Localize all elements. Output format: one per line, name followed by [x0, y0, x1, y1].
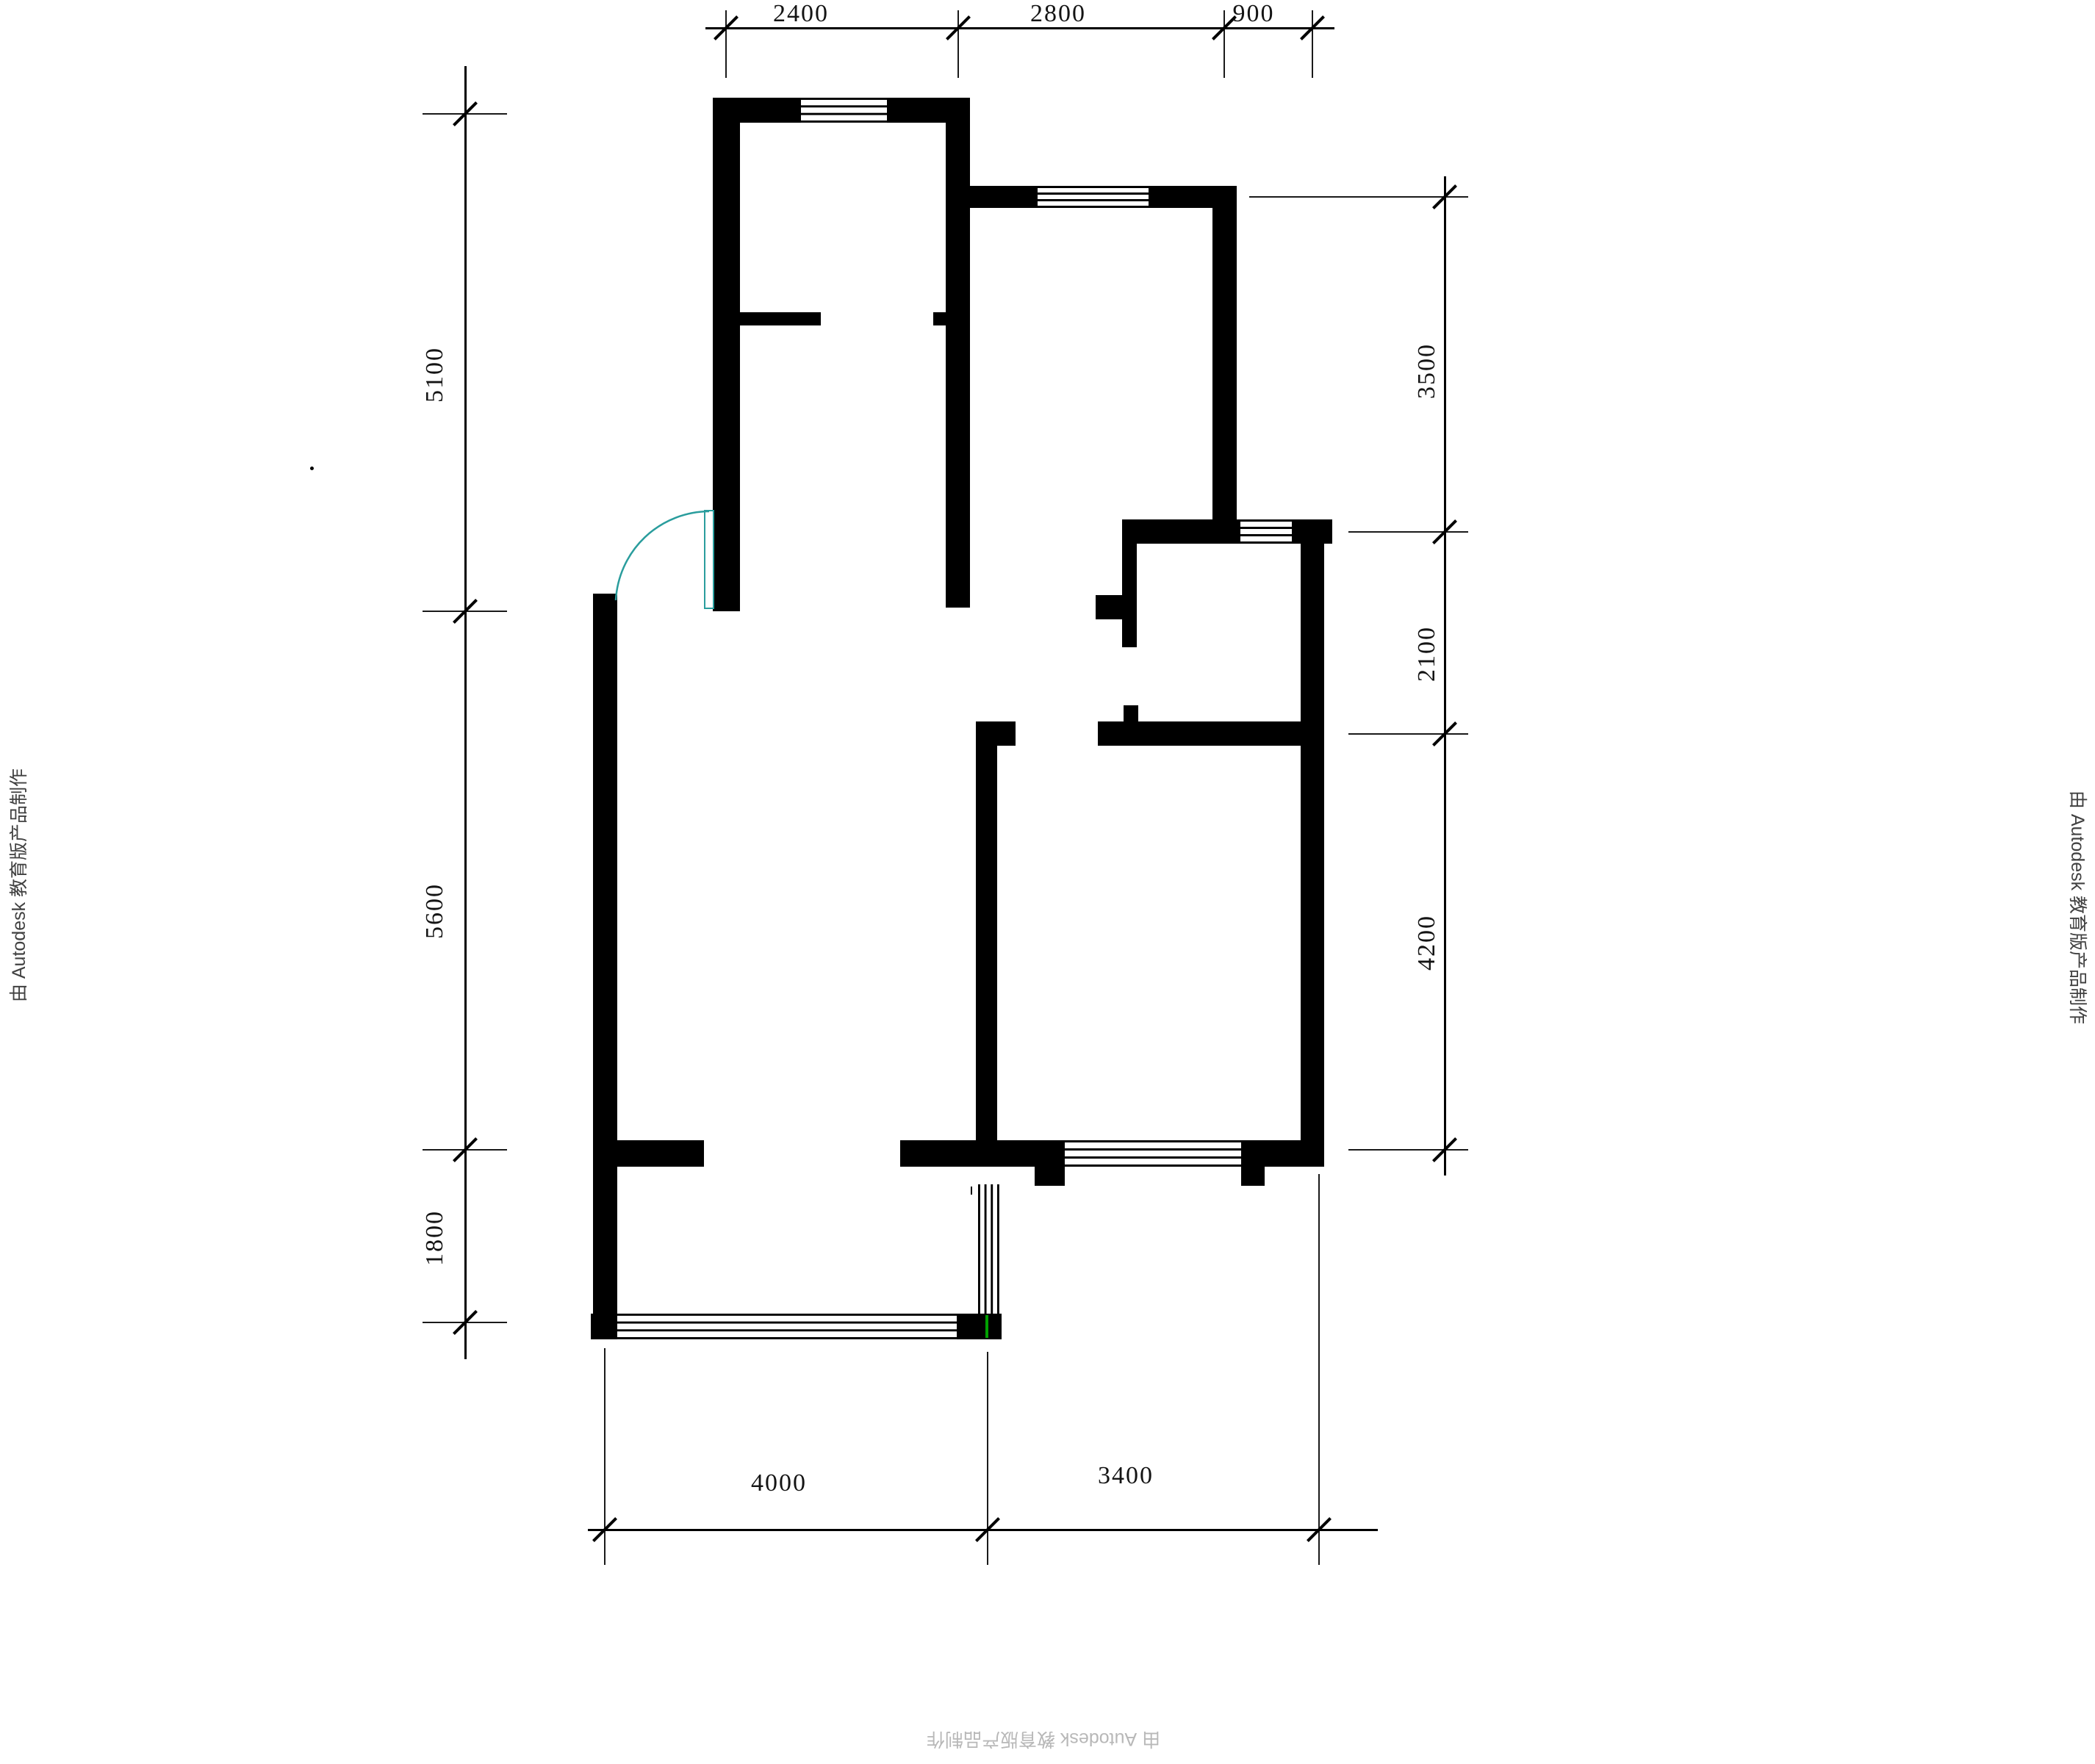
dim-label-top-2800: 2800 — [1030, 0, 1086, 28]
extension-line — [987, 1352, 988, 1565]
extension-line — [604, 1348, 605, 1565]
balcony-green-mark — [985, 1315, 988, 1338]
dimension-line-bottom — [588, 1529, 1378, 1531]
watermark-right: 由 Autodesk 教育版产品制作 — [2066, 782, 2088, 1032]
wall-room2-right — [1212, 186, 1237, 519]
wall-bedroom2-bottom-right — [1241, 1140, 1324, 1167]
wall-bath-left-stub — [1124, 705, 1138, 721]
dim-label-right-4200: 4200 — [1413, 915, 1441, 971]
wall-bedroom1-right — [946, 98, 970, 608]
wall-balcony-corner-right — [957, 1314, 1002, 1339]
entry-door-swing-arc — [610, 507, 720, 613]
window-balcony-south — [617, 1314, 957, 1339]
dim-label-left-5600: 5600 — [421, 883, 449, 939]
extension-line — [1249, 196, 1468, 198]
wall-east-outer — [1301, 519, 1324, 1167]
dim-label-left-5100: 5100 — [421, 347, 449, 403]
dim-label-right-3500: 3500 — [1413, 343, 1441, 399]
wall-bedroom1-top-left — [713, 98, 801, 123]
wall-window-jamb-right — [1241, 1165, 1265, 1186]
wall-bedroom1-partition-left — [737, 312, 821, 325]
wall-bedroom2-bottom-left — [900, 1140, 1065, 1167]
window-bedroom1 — [801, 98, 887, 123]
dim-label-left-1800: 1800 — [421, 1210, 449, 1266]
extension-line — [1348, 1149, 1468, 1151]
extension-line — [1348, 531, 1468, 533]
wall-bedroom1-partition-jamb — [933, 312, 948, 325]
wall-bedroom2-left — [976, 721, 997, 1153]
wall-bath-top-left — [1122, 519, 1240, 544]
lintel-dashed-line — [971, 1187, 972, 1293]
window-balcony-east — [978, 1184, 999, 1314]
dim-label-top-900: 900 — [1233, 0, 1275, 28]
extension-line — [1348, 733, 1468, 735]
dimension-line-right — [1444, 176, 1446, 1176]
wall-room2-top-left — [969, 186, 1038, 208]
wall-living-left — [593, 594, 617, 1339]
wall-bath-left-upper — [1122, 544, 1137, 647]
watermark-left: 由 Autodesk 教育版产品制作 — [8, 760, 30, 1010]
wall-hall-south-right — [1098, 721, 1301, 746]
floor-plan: 2400 2800 900 5100 5600 1800 3500 2100 4… — [0, 0, 2095, 1764]
extension-line — [957, 10, 959, 78]
window-room2 — [1038, 186, 1149, 208]
extension-line — [1318, 1174, 1320, 1565]
extension-line — [1223, 10, 1225, 78]
wall-window-jamb-left — [1035, 1165, 1065, 1186]
stray-point — [310, 467, 314, 470]
dim-label-bottom-3400: 3400 — [1098, 1462, 1154, 1490]
dim-label-bottom-4000: 4000 — [751, 1469, 807, 1497]
dim-label-right-2100: 2100 — [1413, 626, 1441, 682]
window-bath — [1240, 519, 1292, 544]
dim-label-top-2400: 2400 — [773, 0, 829, 28]
watermark-bottom: 由 Autodesk 教育版产品制作 — [919, 1728, 1168, 1750]
window-bedroom2 — [1065, 1140, 1241, 1167]
wall-living-south-stub — [617, 1140, 704, 1167]
wall-balcony-corner-left — [591, 1314, 617, 1339]
extension-line — [725, 10, 727, 78]
dimension-line-left — [464, 66, 467, 1359]
extension-line — [1312, 10, 1313, 78]
wall-bath-left-jut — [1096, 595, 1122, 619]
